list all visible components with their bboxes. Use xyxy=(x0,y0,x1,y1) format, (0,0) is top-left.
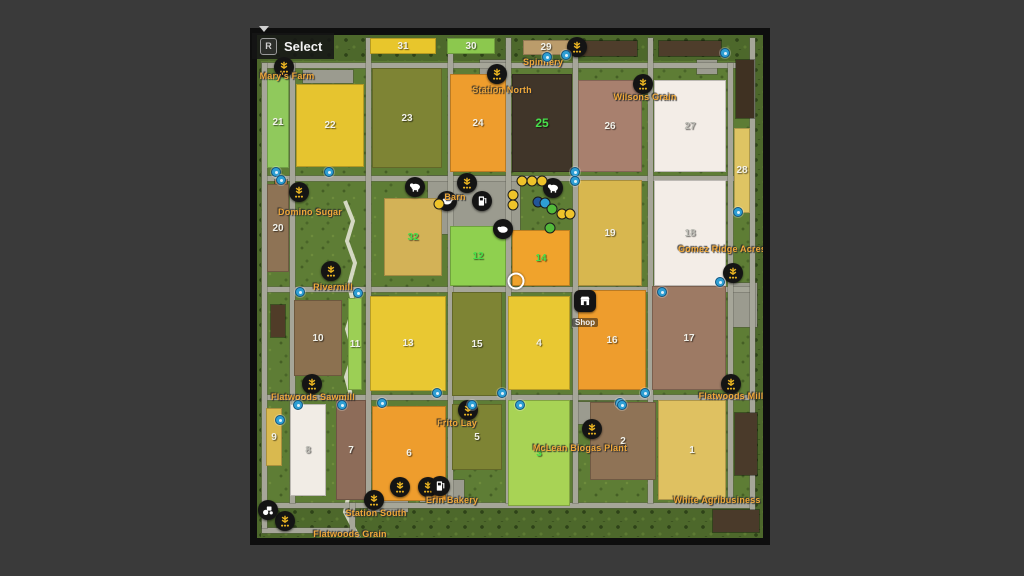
sellpoint-station-north[interactable] xyxy=(487,64,507,84)
field-entry-marker xyxy=(324,167,334,177)
animal-dot xyxy=(565,209,576,220)
animal-dot xyxy=(547,204,558,215)
pig-poi[interactable] xyxy=(493,219,513,239)
shop-icon[interactable] xyxy=(574,290,596,312)
field-entry-marker xyxy=(515,400,525,410)
select-label: Select xyxy=(284,39,322,54)
road xyxy=(366,38,371,503)
field-entry-marker xyxy=(467,400,477,410)
sellpoint-station-south-icon xyxy=(367,493,381,507)
shop-label: Shop xyxy=(572,318,598,327)
pointer-triangle-icon xyxy=(259,26,269,32)
field-11[interactable]: 11 xyxy=(348,298,362,390)
sellpoint-flatwoods-grain[interactable] xyxy=(275,511,295,531)
fuel-poi[interactable] xyxy=(430,476,450,496)
field-entry-marker xyxy=(720,48,730,58)
field-28[interactable]: 28 xyxy=(734,128,750,213)
fuel-poi-icon xyxy=(475,194,489,208)
field-entry-marker xyxy=(570,176,580,186)
map-label: Erin Bakery xyxy=(426,495,478,505)
cow-poi[interactable] xyxy=(405,177,425,197)
map-label: Mary's Farm xyxy=(260,71,315,81)
terrain-patch xyxy=(736,60,754,118)
map-canvas[interactable]: 3130292122232425262728203212141918101113… xyxy=(257,35,763,538)
field-entry-marker xyxy=(657,287,667,297)
field-entry-marker xyxy=(275,415,285,425)
fuel-poi-icon xyxy=(433,479,447,493)
field-17[interactable]: 17 xyxy=(652,286,726,390)
sellpoint-station-north-icon xyxy=(490,67,504,81)
field-20[interactable]: 20 xyxy=(267,184,289,272)
field-entry-marker xyxy=(561,50,571,60)
field-entry-marker xyxy=(337,400,347,410)
sellpoint-flatwoods-grain-icon xyxy=(278,514,292,528)
sellpoint-mclean-biogas-icon xyxy=(585,422,599,436)
map-label: Gomez Ridge Acres xyxy=(678,244,763,254)
animal-dot xyxy=(537,176,548,187)
map-label: Domino Sugar xyxy=(278,207,342,217)
field-10[interactable]: 10 xyxy=(294,300,342,376)
key-r-icon: R xyxy=(260,38,277,55)
field-entry-marker xyxy=(733,207,743,217)
field-entry-marker xyxy=(295,287,305,297)
cow-poi-icon xyxy=(546,181,560,195)
road xyxy=(728,63,733,503)
map-label: Flatwoods Mill xyxy=(699,391,763,401)
sellpoint-station-south[interactable] xyxy=(364,490,384,510)
terrain-patch xyxy=(659,41,721,56)
pda-map: 3130292122232425262728203212141918101113… xyxy=(250,28,770,545)
animal-dot xyxy=(434,199,445,210)
field-15[interactable]: 15 xyxy=(452,292,502,396)
select-button[interactable]: R Select xyxy=(252,33,334,59)
sellpoint-wilsons-grain-icon xyxy=(636,77,650,91)
field-entry-marker xyxy=(715,277,725,287)
field-4[interactable]: 4 xyxy=(508,296,570,390)
map-label: McLean Biogas Plant xyxy=(533,443,627,453)
map-label: Station North xyxy=(472,85,532,95)
sellpoint-domino-sugar[interactable] xyxy=(289,182,309,202)
field-entry-marker xyxy=(617,400,627,410)
map-label: Flatwoods Grain xyxy=(313,529,387,538)
sellpoint-rivermill[interactable] xyxy=(321,261,341,281)
sellpoint-mclean-biogas[interactable] xyxy=(582,419,602,439)
field-7[interactable]: 7 xyxy=(336,400,366,500)
terrain-patch xyxy=(713,510,759,532)
player-marker xyxy=(508,273,525,290)
field-18[interactable]: 18 xyxy=(654,180,726,286)
field-1[interactable]: 1 xyxy=(658,400,726,500)
field-13[interactable]: 13 xyxy=(370,296,446,391)
field-entry-marker xyxy=(276,175,286,185)
map-label: Rivermill xyxy=(313,282,353,292)
field-entry-marker xyxy=(640,388,650,398)
animal-dot xyxy=(545,223,556,234)
field-entry-marker xyxy=(432,388,442,398)
sellpoint-spinnery-icon xyxy=(570,40,584,54)
field-31[interactable]: 31 xyxy=(370,38,436,54)
field-21[interactable]: 21 xyxy=(267,76,289,168)
sellpoint-barn-icon xyxy=(460,176,474,190)
pig-poi-icon xyxy=(496,222,510,236)
field-entry-marker xyxy=(353,288,363,298)
map-label: Frito Lay xyxy=(437,418,477,428)
fuel-poi[interactable] xyxy=(472,191,492,211)
field-30[interactable]: 30 xyxy=(447,38,495,54)
sellpoint-wilsons-grain[interactable] xyxy=(633,74,653,94)
sellpoint-domino-sugar-icon xyxy=(292,185,306,199)
animal-dot xyxy=(508,200,519,211)
field-23[interactable]: 23 xyxy=(372,68,442,168)
sellpoint-flatwoods-sawmill[interactable] xyxy=(302,374,322,394)
field-8[interactable]: 8 xyxy=(290,404,326,496)
map-label: Barn xyxy=(444,192,465,202)
sellpoint-barn[interactable] xyxy=(457,173,477,193)
sellpoint-gomez-ridge-acres-icon xyxy=(726,266,740,280)
field-32[interactable]: 32 xyxy=(384,198,442,276)
terrain-patch xyxy=(271,305,285,337)
field-3[interactable]: 3 xyxy=(508,400,570,506)
shop-hotspot[interactable]: Shop xyxy=(572,290,598,330)
field-entry-marker xyxy=(497,388,507,398)
field-entry-marker xyxy=(542,52,552,62)
tractor-poi-icon xyxy=(261,503,275,517)
map-label: White Agribusiness xyxy=(673,495,760,505)
field-entry-marker xyxy=(377,398,387,408)
field-22[interactable]: 22 xyxy=(296,84,364,167)
sellpoint-erin-bakery-1[interactable] xyxy=(390,477,410,497)
cow-poi-icon xyxy=(408,180,422,194)
terrain-patch xyxy=(735,413,757,475)
field-19[interactable]: 19 xyxy=(578,180,642,286)
field-2[interactable]: 2 xyxy=(590,402,656,480)
sellpoint-erin-bakery-1-icon xyxy=(393,480,407,494)
sellpoint-flatwoods-sawmill-icon xyxy=(305,377,319,391)
tractor-poi[interactable] xyxy=(258,500,278,520)
field-entry-marker xyxy=(293,400,303,410)
map-label: Wilsons Grain xyxy=(613,92,676,102)
sellpoint-rivermill-icon xyxy=(324,264,338,278)
sellpoint-flatwoods-mill-icon xyxy=(724,377,738,391)
map-label: Station South xyxy=(345,508,406,518)
sellpoint-gomez-ridge-acres[interactable] xyxy=(723,263,743,283)
